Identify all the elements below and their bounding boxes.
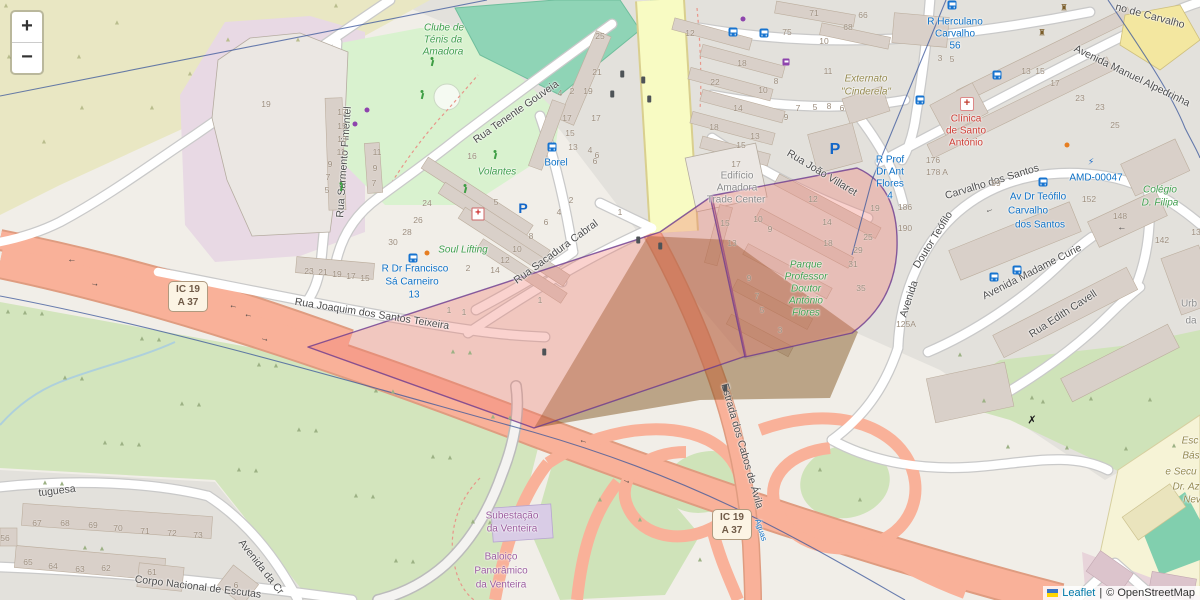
- zoom-out-button[interactable]: −: [12, 43, 42, 73]
- zoom-in-button[interactable]: +: [12, 12, 42, 42]
- map-canvas[interactable]: ▲▲▲▲▲▲▲▲▲▲▲▲▲▲▲▲▲▲▲▲▲▲▲▲▲▲▲▲▲▲▲▲▲▲▲▲▲▲▲▲…: [0, 0, 1200, 600]
- playground-pad: [434, 84, 460, 110]
- map-graphics: [0, 0, 1200, 600]
- osm-attribution: © OpenStreetMap: [1106, 587, 1195, 599]
- attribution-separator: |: [1099, 587, 1102, 599]
- zoom-control: + −: [10, 10, 44, 75]
- attribution-bar: Leaflet | © OpenStreetMap: [1043, 586, 1200, 600]
- ukraine-flag-icon: [1047, 589, 1058, 597]
- leaflet-link[interactable]: Leaflet: [1062, 587, 1095, 599]
